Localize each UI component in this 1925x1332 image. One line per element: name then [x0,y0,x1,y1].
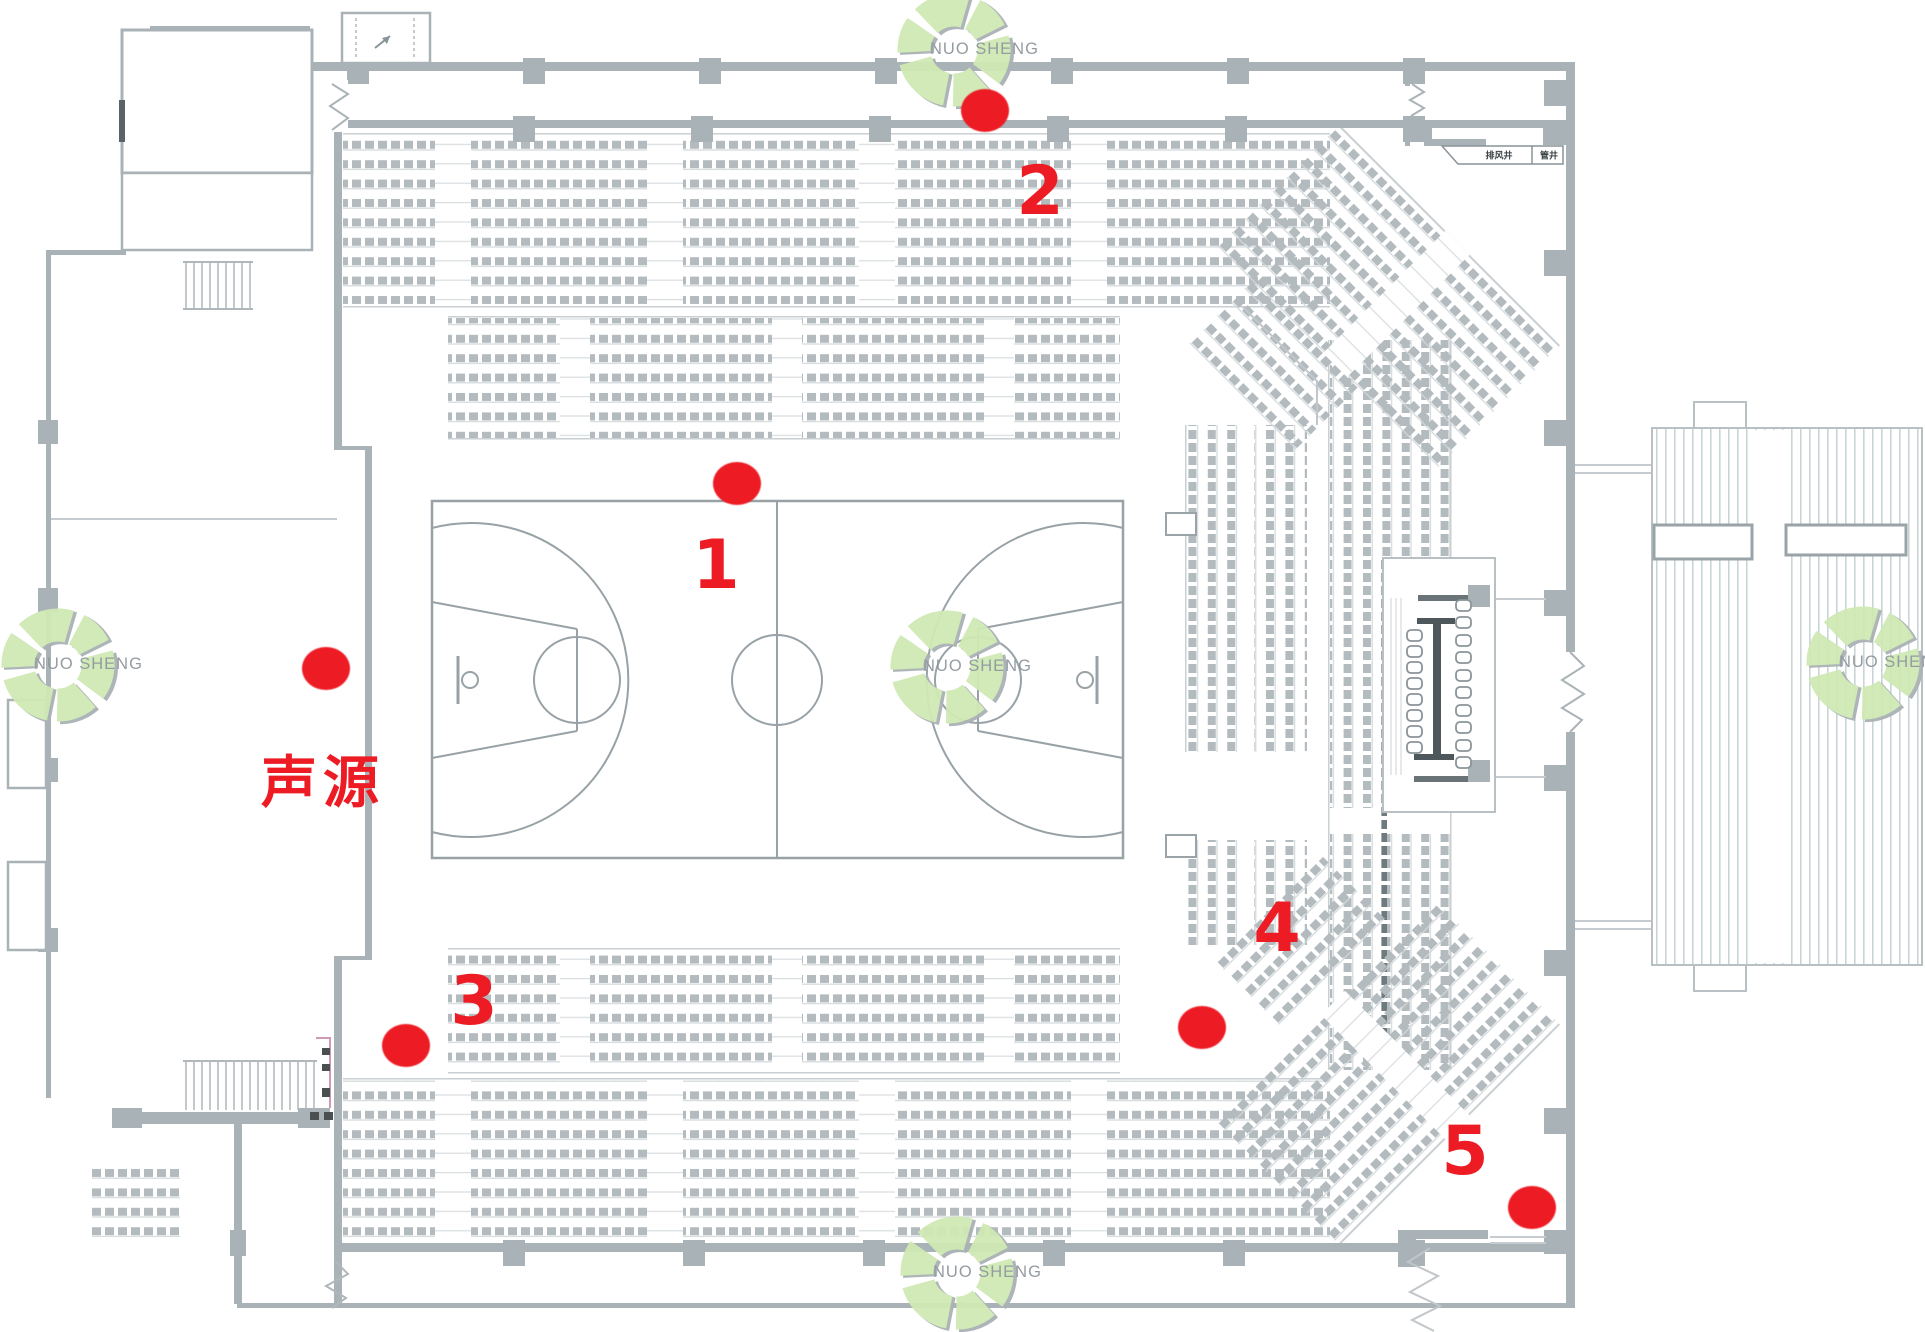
watermark-text: NUO SHENG [933,1263,1042,1281]
sound-source-dot [302,647,350,690]
watermark-text: NUO SHENG [923,657,1032,675]
nuosheng-watermark-logo: NUO SHENG [1793,593,1925,738]
watermark-text: NUO SHENG [930,40,1039,58]
measurement-point-dot-3 [382,1024,430,1067]
measurement-point-label-3: 3 [450,968,497,1036]
measurement-point-label-5: 5 [1441,1118,1488,1186]
annotation-overlay: NUO SHENGNUO SHENGNUO SHENGNUO SHENGNUO … [0,0,1925,1332]
measurement-point-dot-5 [1508,1186,1556,1229]
nuosheng-watermark-logo: NUO SHENG [0,595,178,740]
watermark-text: NUO SHENG [1839,653,1925,671]
watermark-text: NUO SHENG [34,655,143,673]
floor-plan-stage: NUO SHENGNUO SHENGNUO SHENGNUO SHENGNUO … [0,0,1925,1332]
measurement-point-dot-2 [961,89,1009,132]
nuosheng-watermark-logo: NUO SHENG [877,597,1067,742]
measurement-point-label-2: 2 [1016,158,1063,226]
sound-source-label: 声源 [261,756,385,812]
measurement-point-dot-1 [713,462,761,505]
shaft-room-label-0: 排风井 [1485,149,1512,162]
nuosheng-watermark-logo: NUO SHENG [887,1203,1077,1332]
measurement-point-label-4: 4 [1253,895,1300,963]
measurement-point-label-1: 1 [692,532,739,600]
shaft-room-label-1: 管井 [1540,149,1558,162]
measurement-point-dot-4 [1178,1006,1226,1049]
